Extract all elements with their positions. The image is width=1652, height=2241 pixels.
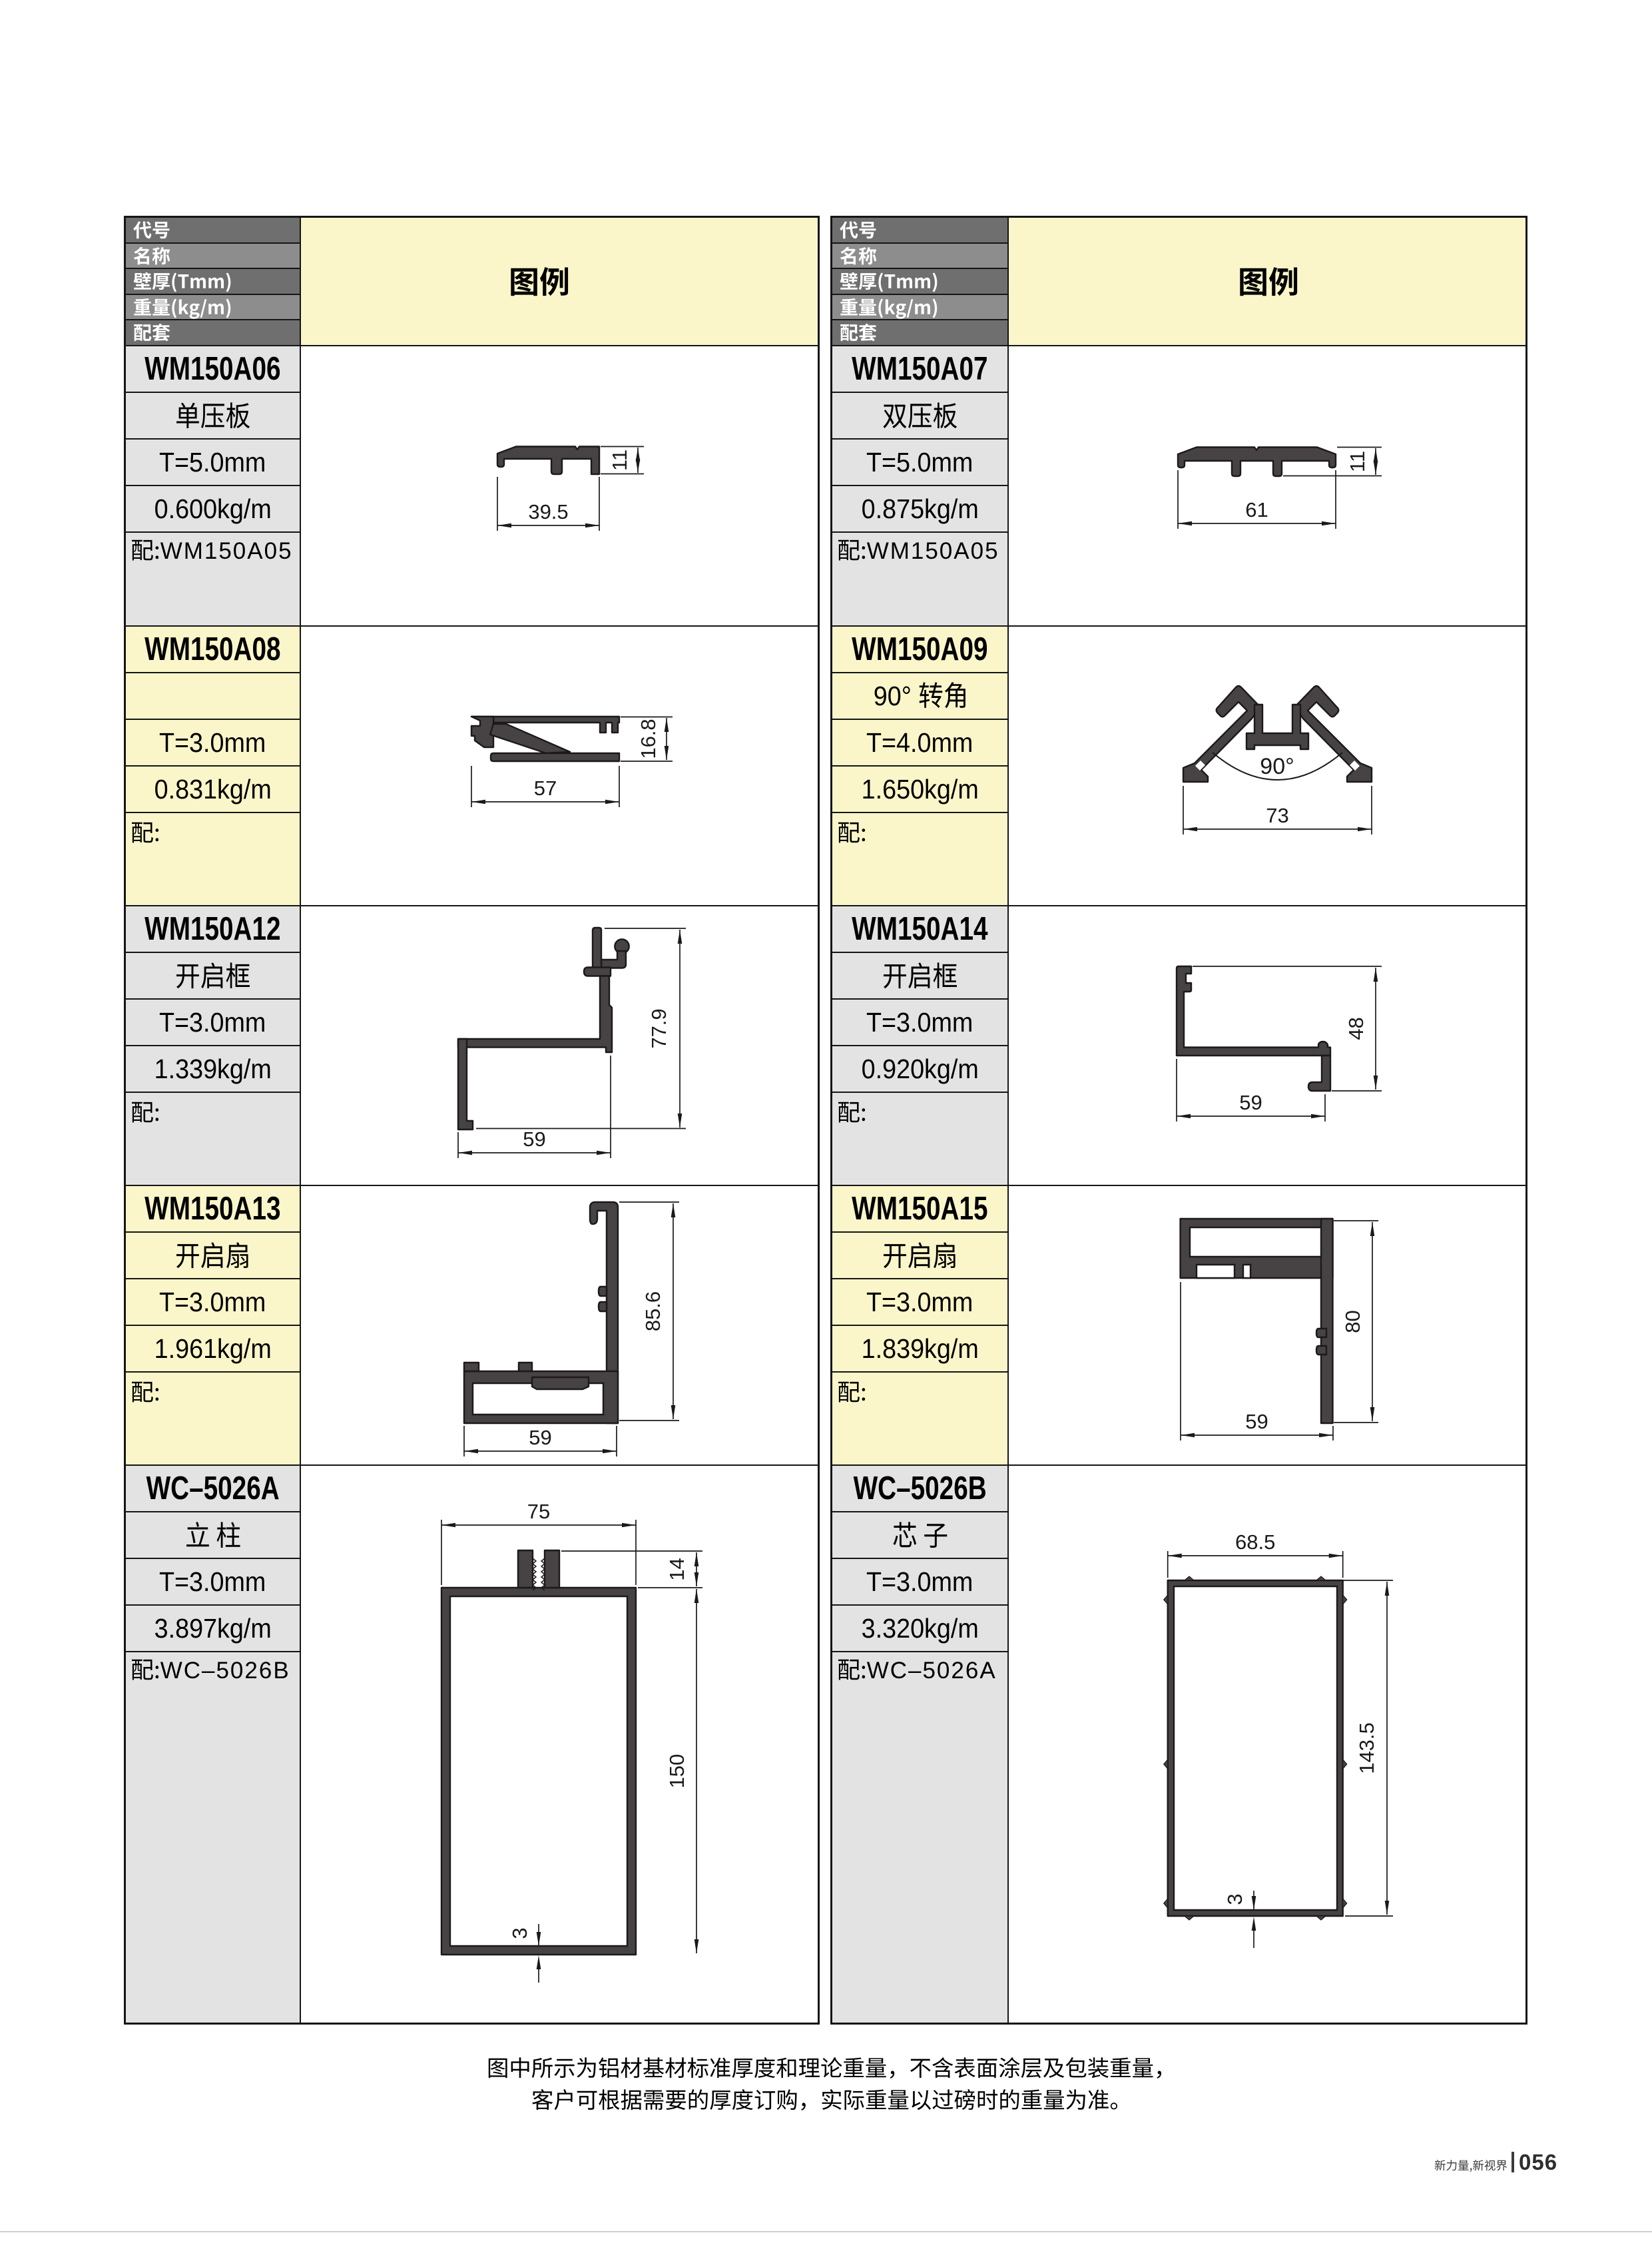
- svg-text:59: 59: [1239, 1091, 1262, 1114]
- svg-text:59: 59: [523, 1127, 545, 1151]
- svg-text:57: 57: [534, 777, 557, 800]
- svg-text:3: 3: [1223, 1893, 1246, 1905]
- svg-text:48: 48: [1344, 1017, 1368, 1040]
- svg-text:85.6: 85.6: [641, 1291, 665, 1331]
- svg-text:59: 59: [529, 1426, 551, 1449]
- svg-text:3: 3: [508, 1927, 531, 1939]
- svg-text:16.8: 16.8: [637, 719, 660, 759]
- svg-text:80: 80: [1341, 1310, 1364, 1333]
- svg-text:75: 75: [527, 1500, 550, 1523]
- svg-text:73: 73: [1266, 804, 1288, 827]
- svg-text:77.9: 77.9: [647, 1008, 671, 1048]
- svg-text:14: 14: [665, 1558, 688, 1580]
- svg-text:143.5: 143.5: [1355, 1722, 1378, 1774]
- svg-text:90°: 90°: [1260, 754, 1294, 779]
- svg-text:150: 150: [665, 1754, 688, 1789]
- svg-text:11: 11: [608, 450, 631, 471]
- svg-text:59: 59: [1245, 1410, 1268, 1433]
- svg-text:68.5: 68.5: [1235, 1530, 1275, 1554]
- svg-text:39.5: 39.5: [528, 500, 568, 523]
- svg-text:11: 11: [1346, 451, 1369, 472]
- svg-text:61: 61: [1245, 498, 1268, 521]
